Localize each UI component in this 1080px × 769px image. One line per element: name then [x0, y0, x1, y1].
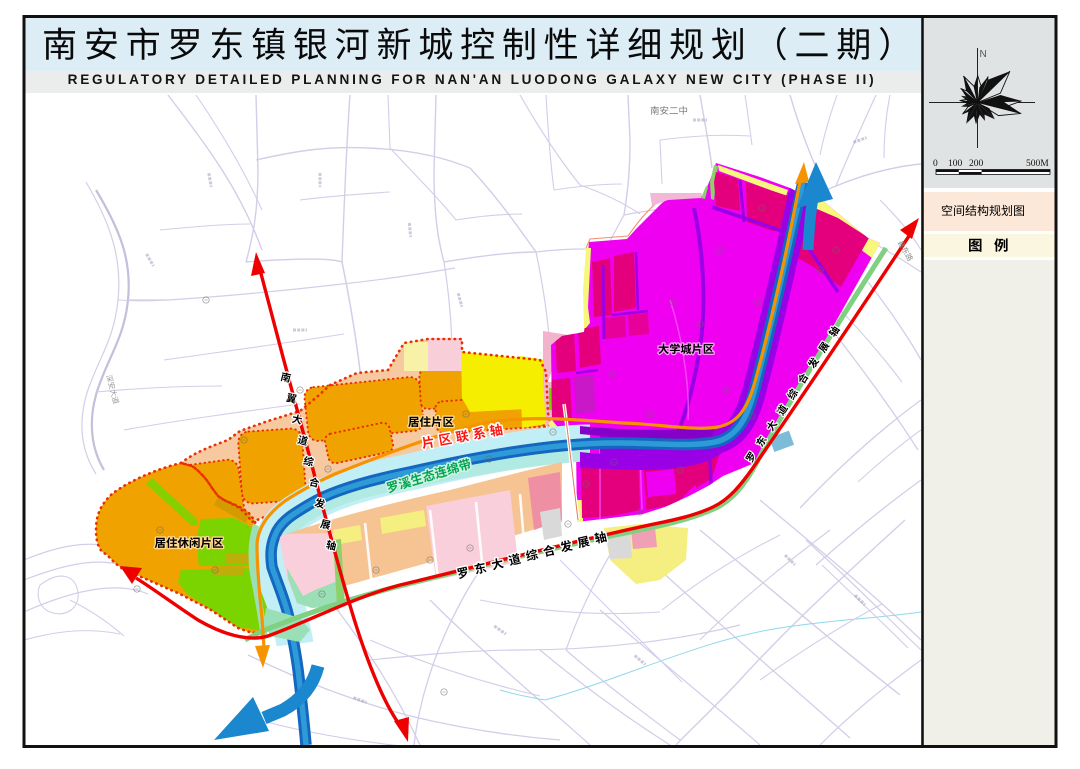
svg-text:500M: 500M	[1026, 159, 1049, 169]
svg-text:200: 200	[969, 159, 984, 169]
svg-text:100: 100	[948, 159, 963, 169]
svg-text:0: 0	[933, 159, 938, 169]
svg-text:REGULATORY DETAILED PLANNING F: REGULATORY DETAILED PLANNING FOR NAN'AN …	[68, 72, 877, 87]
svg-text:N: N	[980, 49, 987, 60]
